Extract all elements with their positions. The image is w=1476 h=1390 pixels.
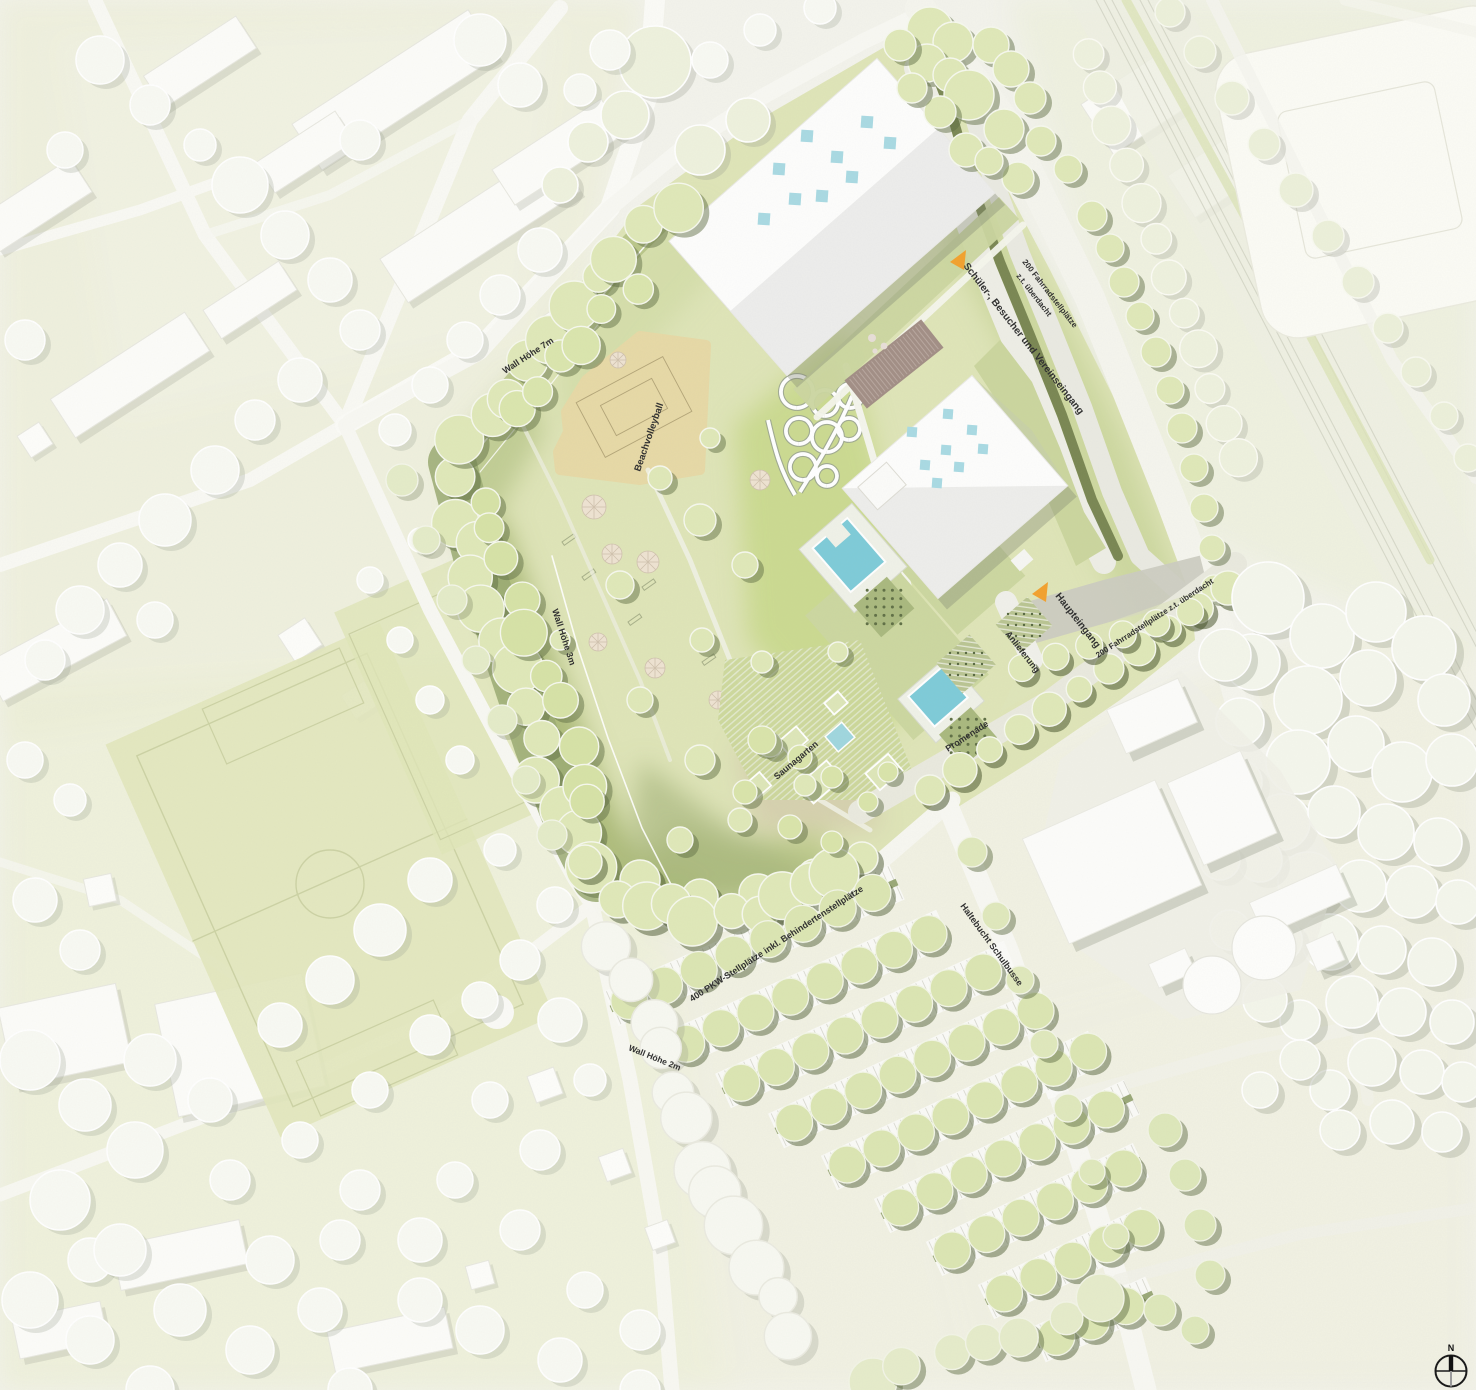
svg-text:N: N <box>1448 1343 1455 1353</box>
